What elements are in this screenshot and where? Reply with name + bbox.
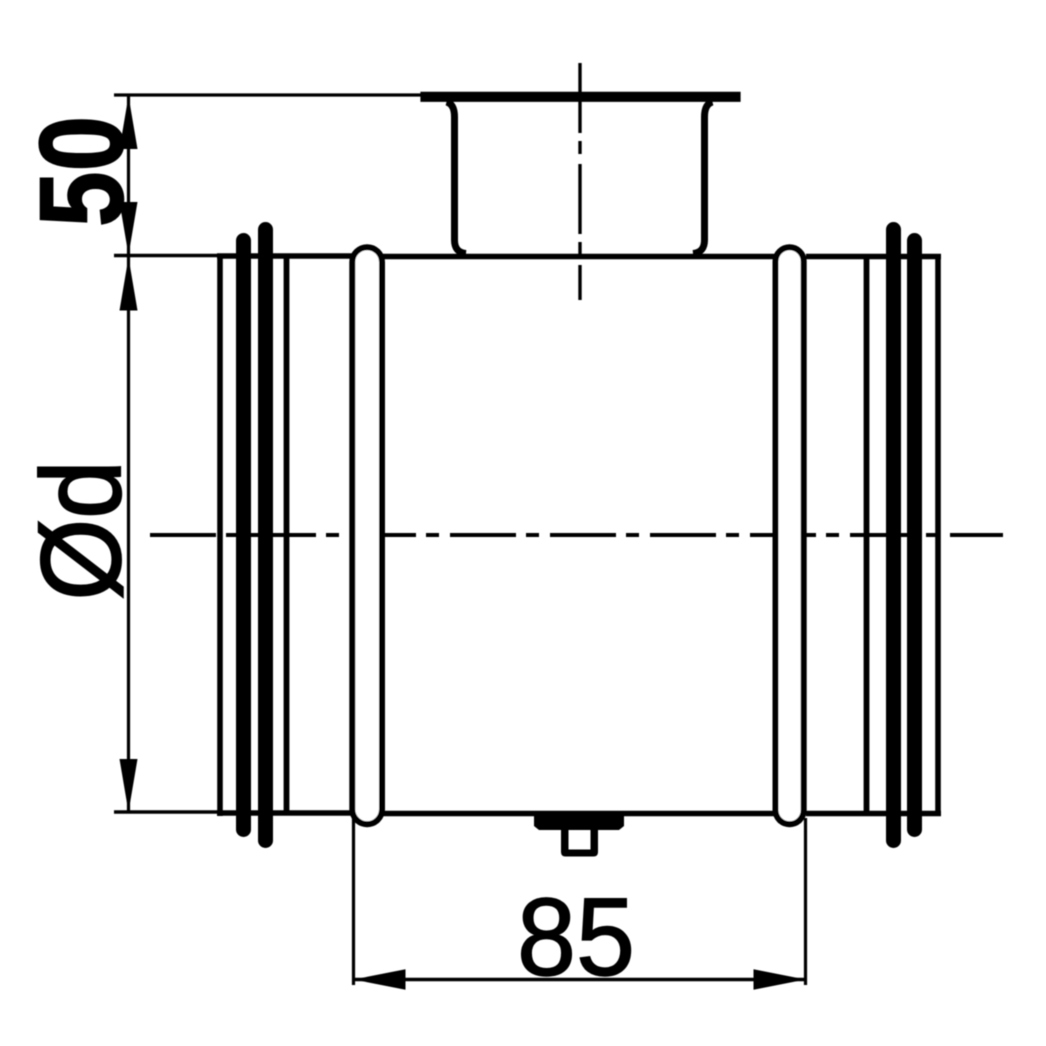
svg-text:Ød: Ød bbox=[19, 460, 145, 600]
svg-text:50: 50 bbox=[16, 116, 148, 227]
svg-text:85: 85 bbox=[517, 876, 635, 999]
